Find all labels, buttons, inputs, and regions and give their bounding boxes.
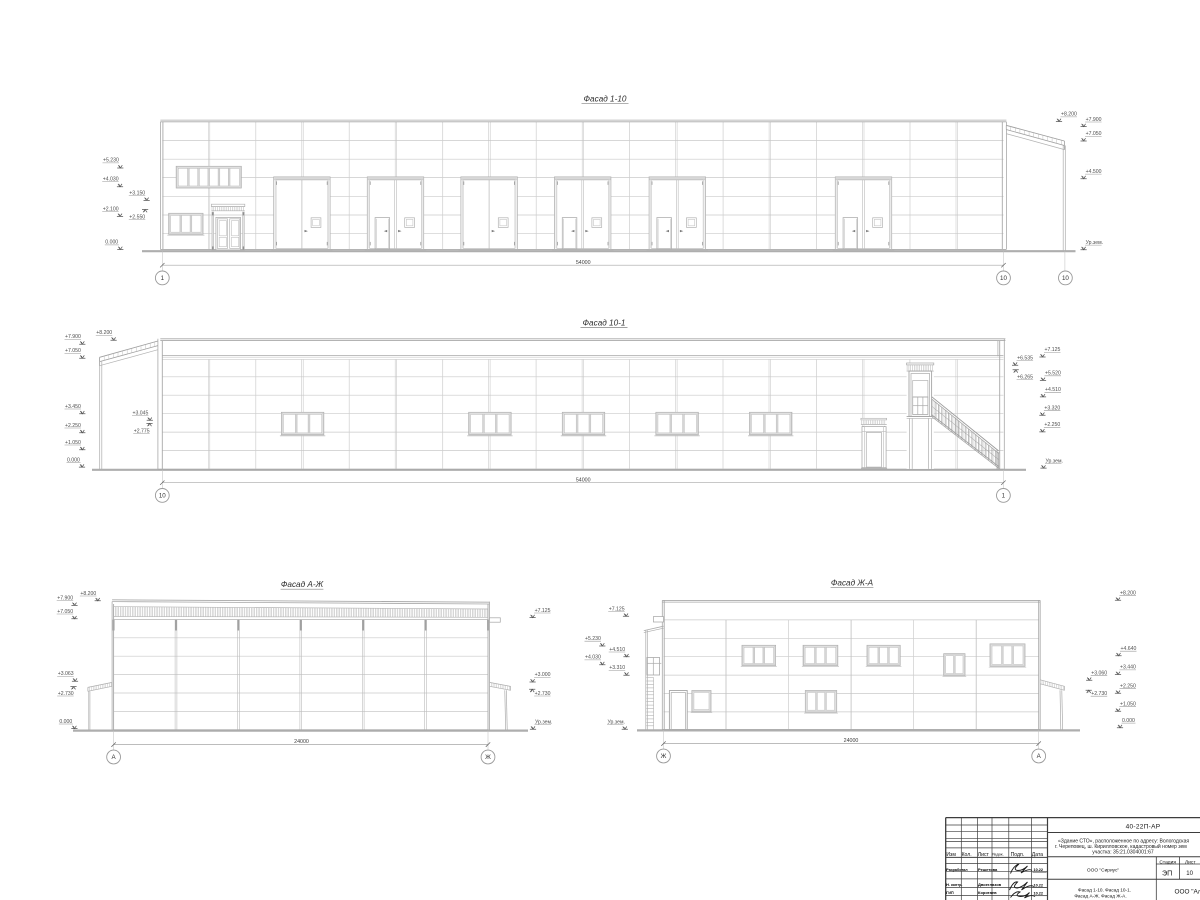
- svg-text:Фасад 1-10. Фасад 10-1.: Фасад 1-10. Фасад 10-1.: [1078, 887, 1131, 892]
- svg-text:10: 10: [1062, 275, 1069, 282]
- svg-text:Кол.: Кол.: [962, 852, 972, 858]
- svg-text:Лист: Лист: [978, 852, 990, 858]
- svg-text:Фасад А-Ж. Фасад Ж-А.: Фасад А-Ж. Фасад Ж-А.: [1074, 893, 1126, 898]
- svg-text:Двоеглазов: Двоеглазов: [978, 882, 1002, 887]
- svg-text:Разработал: Разработал: [946, 868, 968, 872]
- svg-text:Ж: Ж: [485, 754, 491, 761]
- svg-text:Решетова: Решетова: [978, 867, 998, 872]
- svg-text:10: 10: [159, 493, 166, 500]
- svg-text:участка: 35:21.0304001:67: участка: 35:21.0304001:67: [1092, 849, 1154, 855]
- svg-text:ЭП: ЭП: [1162, 869, 1172, 878]
- svg-text:10.22: 10.22: [1034, 892, 1044, 896]
- svg-text:Лист: Лист: [1185, 859, 1196, 865]
- svg-text:№док.: №док.: [992, 852, 1003, 857]
- svg-text:Изм: Изм: [946, 852, 956, 858]
- svg-text:24000: 24000: [294, 739, 309, 745]
- svg-text:ООО "Ал: ООО "Ал: [1175, 889, 1200, 896]
- svg-text:Стадия: Стадия: [1159, 859, 1176, 865]
- svg-text:1: 1: [161, 275, 165, 282]
- svg-text:Фасад Ж-А: Фасад Ж-А: [831, 579, 874, 588]
- svg-text:Коротаев: Коротаев: [978, 890, 997, 895]
- svg-text:10: 10: [1186, 871, 1193, 877]
- svg-text:10.22: 10.22: [1034, 868, 1044, 872]
- svg-text:54000: 54000: [576, 260, 591, 266]
- svg-text:54000: 54000: [576, 477, 591, 483]
- svg-text:Подп.: Подп.: [1011, 852, 1025, 858]
- svg-text:Фасад 1-10: Фасад 1-10: [584, 95, 627, 104]
- svg-text:Фасад А-Ж: Фасад А-Ж: [281, 580, 324, 589]
- svg-text:24000: 24000: [844, 738, 859, 744]
- svg-text:ООО "Сириус": ООО "Сириус": [1087, 868, 1119, 874]
- svg-text:Дата: Дата: [1032, 852, 1043, 858]
- svg-text:10: 10: [1000, 275, 1007, 282]
- svg-text:40-22П-АР: 40-22П-АР: [1126, 824, 1161, 831]
- svg-text:Н. контр.: Н. контр.: [946, 883, 962, 887]
- svg-text:ГИП: ГИП: [946, 891, 954, 895]
- svg-text:1: 1: [1002, 493, 1006, 500]
- svg-text:10.22: 10.22: [1034, 883, 1044, 887]
- svg-text:Фасад 10-1: Фасад 10-1: [583, 318, 626, 327]
- svg-text:Ж: Ж: [661, 753, 667, 760]
